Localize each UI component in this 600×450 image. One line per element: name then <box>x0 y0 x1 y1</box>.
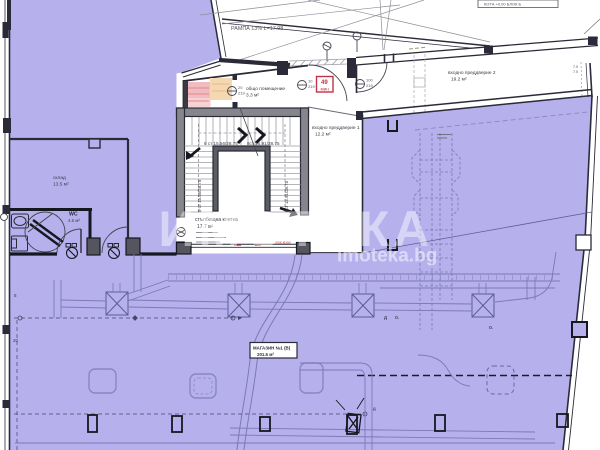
svg-text:7.5: 7.5 <box>573 70 578 74</box>
svg-text:19.2 м²: 19.2 м² <box>451 77 467 83</box>
svg-text:WC: WC <box>69 212 78 218</box>
svg-text:входно преддверие 1: входно преддверие 1 <box>312 125 360 131</box>
svg-text:219: 219 <box>366 83 373 88</box>
svg-text:КОТА +0.00 БЛОК Б: КОТА +0.00 БЛОК Б <box>484 2 522 7</box>
svg-text:о.: о. <box>489 325 493 331</box>
svg-text:100: 100 <box>366 78 373 83</box>
svg-text:РАМПА 13% L=17.98: РАМПА 13% L=17.98 <box>231 26 283 32</box>
svg-text:8ст 15.91/28.75: 8ст 15.91/28.75 <box>247 141 280 146</box>
svg-text:д: д <box>373 406 376 411</box>
svg-text:219: 219 <box>308 84 315 89</box>
svg-text:219: 219 <box>238 91 245 96</box>
svg-text:4.6 м²: 4.6 м² <box>68 218 80 223</box>
svg-text:20: 20 <box>13 338 19 343</box>
svg-text:201.5 м²: 201.5 м² <box>257 352 274 357</box>
svg-text:7.5: 7.5 <box>573 65 578 69</box>
svg-text:о.: о. <box>395 315 399 321</box>
svg-text:3.3 м²: 3.3 м² <box>246 93 259 99</box>
svg-text:МАГАЗИН №1 (В): МАГАЗИН №1 (В) <box>253 346 291 351</box>
svg-text:склад: склад <box>53 176 66 181</box>
svg-text:входно преддверие 2: входно преддверие 2 <box>448 70 496 76</box>
svg-text:13.5 м²: 13.5 м² <box>53 182 69 188</box>
svg-text:49: 49 <box>321 80 328 86</box>
svg-text:10: 10 <box>308 79 313 84</box>
svg-text:общо помещение: общо помещение <box>246 86 285 92</box>
svg-text:20: 20 <box>238 85 243 90</box>
svg-text:д: д <box>384 315 387 321</box>
svg-text:12.2 м²: 12.2 м² <box>315 132 331 138</box>
svg-text:мин: мин <box>321 87 330 92</box>
svg-text:6 ст 15.56/28.75: 6 ст 15.56/28.75 <box>204 141 238 146</box>
svg-text:imoteka.bg: imoteka.bg <box>337 246 437 267</box>
